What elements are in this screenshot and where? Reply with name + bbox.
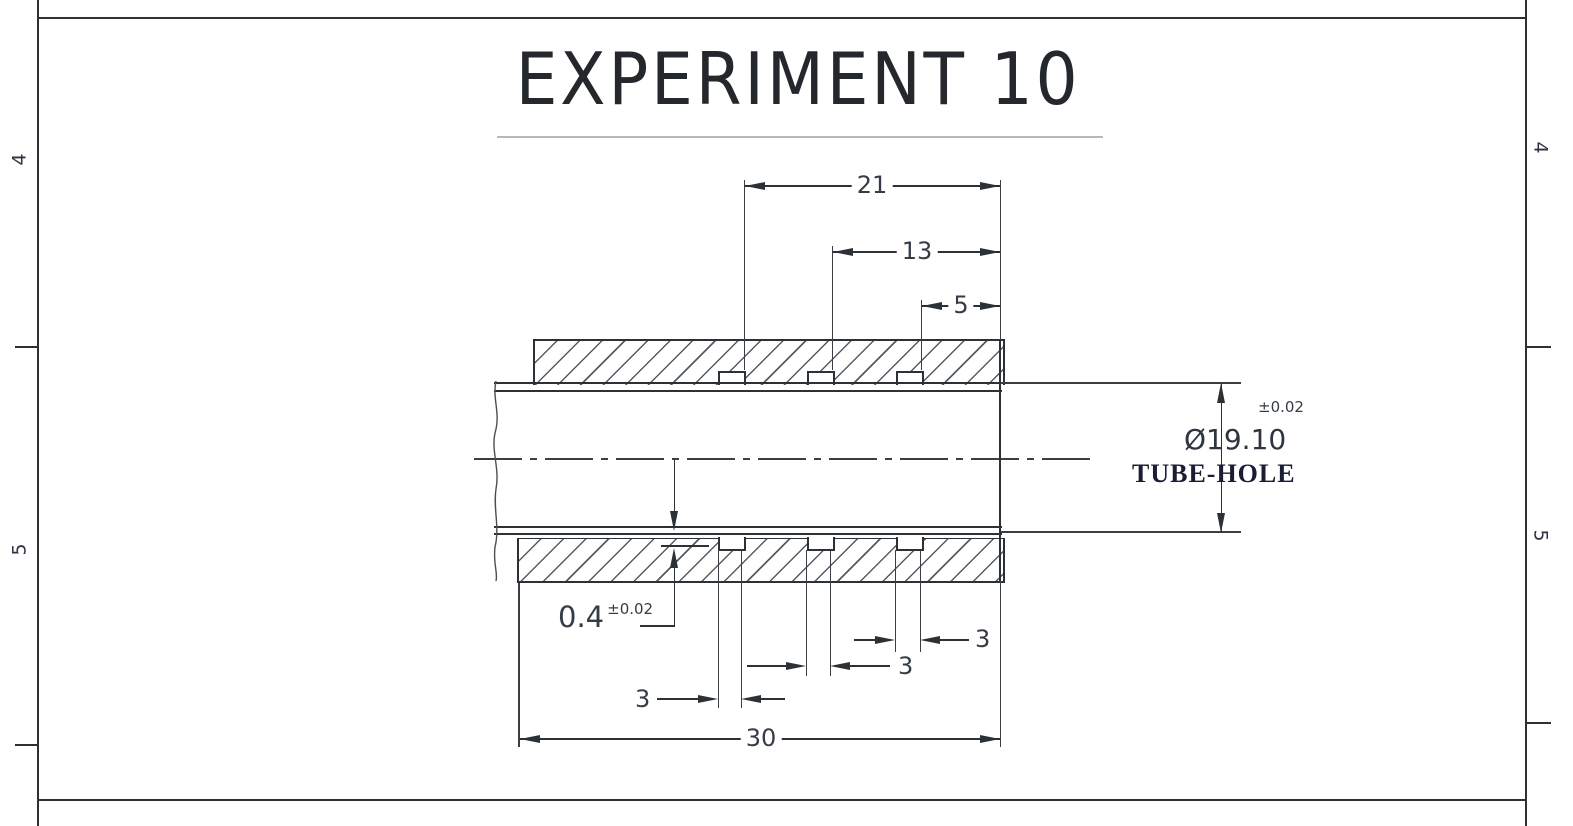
arrowhead-groove2-left — [786, 662, 806, 670]
arrowhead-hole-down — [1217, 513, 1225, 533]
tube-hole-label: TUBE-HOLE — [1132, 459, 1296, 489]
dim-line-groove1-left — [657, 698, 699, 700]
arrowhead-groove3-left — [875, 636, 895, 644]
arrowhead-groove2-right — [830, 662, 850, 670]
top-flange-section — [533, 339, 1005, 385]
arrowhead-30-left — [520, 735, 540, 743]
land-tolerance: ±0.02 — [607, 600, 653, 618]
arrowhead-30-right — [980, 735, 1000, 743]
arrowhead-hole-up — [1217, 383, 1225, 403]
dim-line-groove2-left — [747, 665, 787, 667]
extension-line-groove2-right — [830, 550, 832, 676]
tube-hole-tolerance: ±0.02 — [1258, 398, 1304, 416]
dim-label-5: 5 — [948, 293, 973, 317]
arrowhead-groove3-right — [920, 636, 940, 644]
dim-line-tube-hole — [1221, 383, 1223, 533]
dim-line-groove3-left — [854, 639, 876, 641]
extension-line-groove1-right — [741, 550, 743, 708]
dim-line-groove2-right — [849, 665, 890, 667]
dim-label-land: 0.4±0.02 — [558, 600, 653, 634]
arrowhead-13-right — [980, 248, 1000, 256]
border-right-line — [1525, 0, 1527, 826]
part-right-edge-line — [999, 339, 1001, 581]
tube-wall-top-inner-line — [494, 390, 1002, 392]
extension-line-21 — [744, 180, 746, 370]
tube-wall-top-outer-line — [494, 382, 1002, 384]
extension-line-30-left — [518, 583, 520, 747]
extension-line-right-top — [1000, 180, 1002, 339]
extension-line-groove2-left — [806, 550, 808, 676]
bottom-flange-section — [517, 538, 1005, 583]
dim-label-13: 13 — [897, 239, 938, 263]
dim-label-groove3: 3 — [970, 627, 995, 651]
zone-tick-right-lower — [1527, 722, 1551, 724]
extension-line-hole-top — [1001, 382, 1241, 384]
arrowhead-land-down — [670, 511, 678, 531]
zone-label-right-4: 4 — [1531, 141, 1550, 153]
drawing-sheet: 4 5 4 5 EXPERIMENT 10 21 13 — [0, 0, 1573, 826]
arrowhead-5-right — [980, 302, 1000, 310]
title-underline — [497, 136, 1103, 138]
groove-notch-bottom-2 — [807, 537, 835, 551]
dim-line-land-lower — [674, 566, 676, 627]
arrowhead-13-left — [833, 248, 853, 256]
dim-line-groove1-right — [760, 698, 785, 700]
tube-wall-bottom-inner-line — [494, 526, 1002, 528]
extension-line-13 — [832, 246, 834, 370]
arrowhead-groove1-left — [698, 695, 718, 703]
dim-label-groove2: 3 — [893, 654, 918, 678]
arrowhead-groove1-right — [741, 695, 761, 703]
tube-hole-diameter: Ø19.10 — [1184, 423, 1286, 456]
center-line — [474, 458, 1097, 460]
dim-line-land-upper — [674, 459, 676, 512]
arrowhead-21-right — [980, 182, 1000, 190]
dim-label-groove1: 3 — [630, 687, 655, 711]
border-left-line — [37, 0, 39, 826]
groove-notch-bottom-3 — [896, 537, 924, 551]
tube-wall-bottom-outer-line — [494, 533, 1002, 535]
extension-line-hole-bottom — [1001, 531, 1241, 533]
arrowhead-land-up — [670, 548, 678, 568]
border-top-line — [37, 17, 1527, 19]
arrowhead-5-left — [922, 302, 942, 310]
dim-label-21: 21 — [852, 173, 893, 197]
zone-label-left-5: 5 — [11, 543, 30, 555]
zone-tick-left-lower — [15, 744, 37, 746]
zone-tick-right-upper — [1527, 346, 1551, 348]
extension-line-5 — [921, 300, 923, 370]
land-value: 0.4 — [558, 600, 604, 634]
border-bottom-line — [37, 799, 1527, 801]
break-line-wavy — [488, 381, 504, 581]
dim-line-groove3-right — [939, 639, 969, 641]
land-reference-tick — [661, 545, 709, 547]
zone-label-left-4: 4 — [11, 153, 30, 165]
arrowhead-21-left — [745, 182, 765, 190]
extension-line-right-bottom — [1000, 581, 1002, 747]
drawing-title: EXPERIMENT 10 — [499, 42, 1097, 118]
zone-label-right-5: 5 — [1531, 529, 1550, 541]
groove-notch-bottom-1 — [718, 537, 746, 551]
extension-line-groove1-left — [718, 550, 720, 708]
zone-tick-left-upper — [15, 346, 37, 348]
dim-label-30: 30 — [741, 726, 782, 750]
